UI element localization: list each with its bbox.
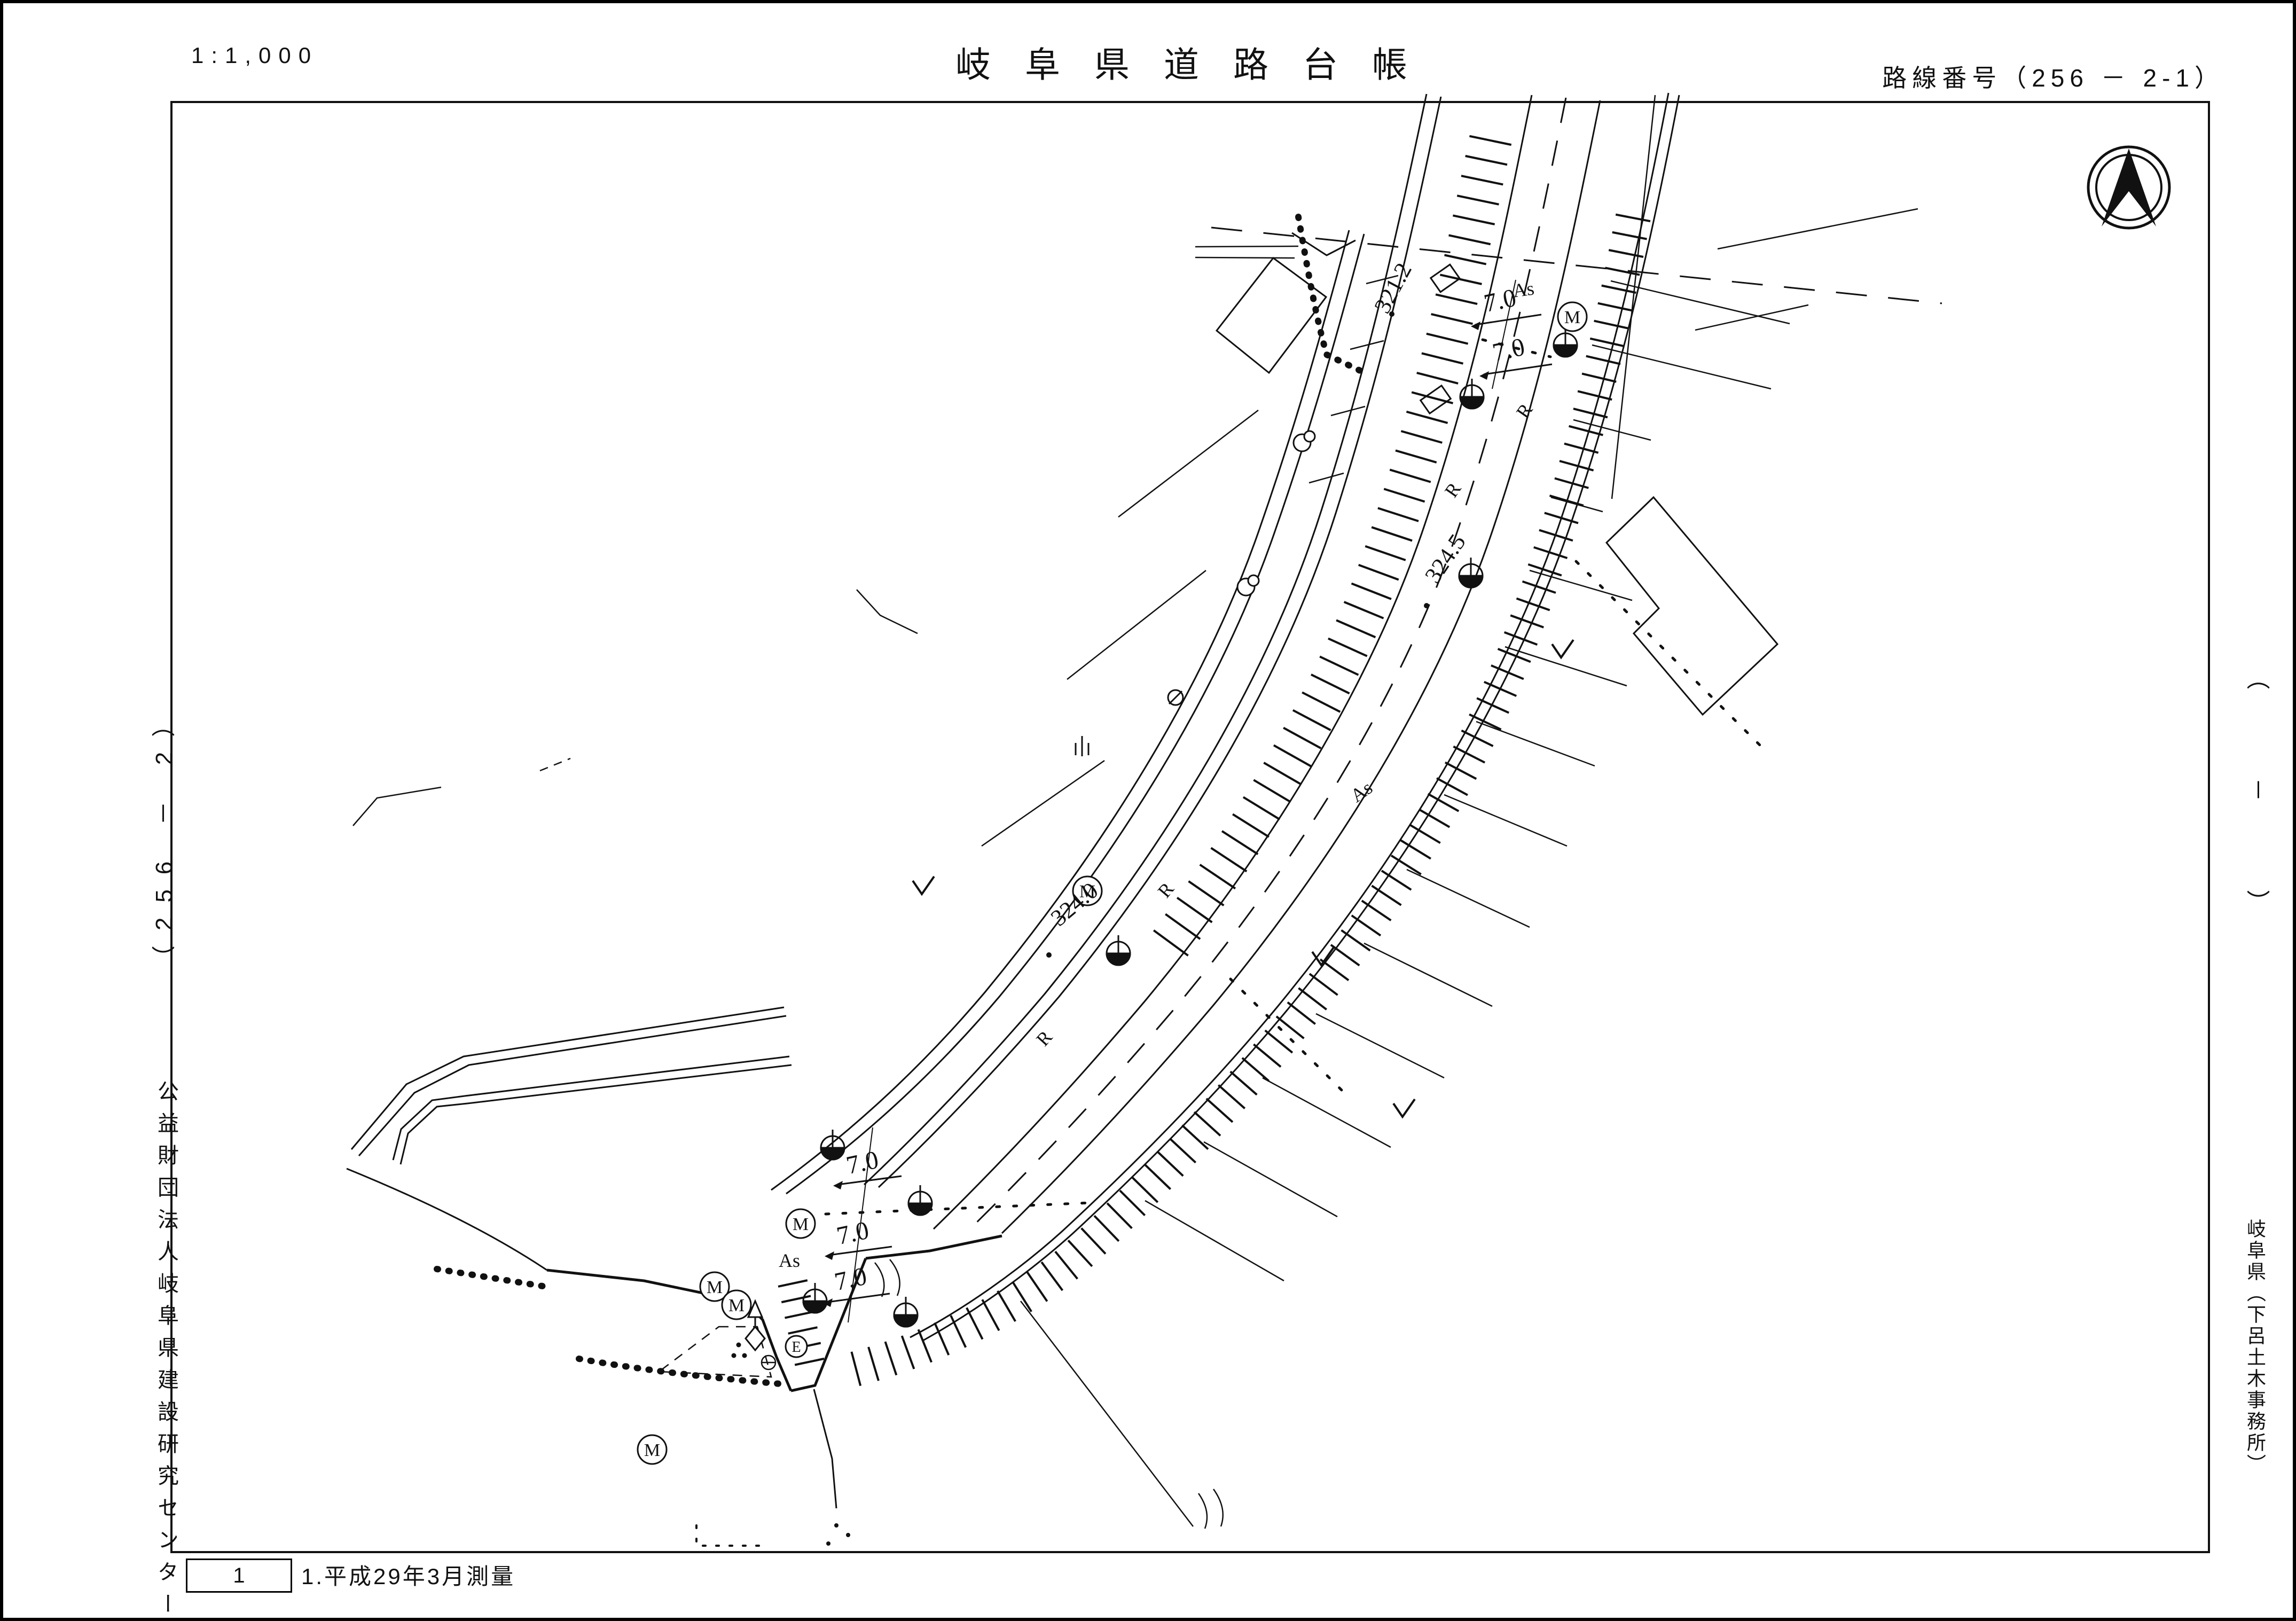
right-corridor-edge <box>910 93 1668 1337</box>
curve-label: R <box>1154 878 1178 902</box>
check-marks <box>913 640 1573 1117</box>
road-ledger-sheet: 1:1,000 岐阜県道路台帳 路線番号（256 － 2-1） （256 － 2… <box>0 0 2296 1621</box>
map-canvas: M M M M M M E <box>3 3 2296 1621</box>
curve-label: R <box>1032 1027 1056 1051</box>
spot-elevation-dot <box>1424 603 1429 608</box>
loop-road-edges <box>347 1007 792 1270</box>
surface-label: As <box>1511 278 1535 302</box>
utility-pole-symbol <box>1168 690 1183 705</box>
map-labels: 321.2 324.5 324.0 7.0 7.0 7.0 7.0 7.0 As… <box>779 259 1537 1296</box>
manhole-letter: M <box>1564 308 1580 327</box>
dimension-arrowheads <box>823 322 1489 1307</box>
manhole-letter: M <box>793 1215 809 1234</box>
slope-hatch-band <box>853 217 1633 1369</box>
surface-label: As <box>1346 777 1376 806</box>
dotted-corner <box>696 1525 762 1546</box>
north-arrow-icon <box>2088 147 2169 228</box>
manhole-letter: M <box>707 1278 723 1297</box>
channel-edge <box>771 230 1349 1190</box>
tree-symbols <box>1237 431 1315 596</box>
boundary-dashed-line <box>1211 228 1942 303</box>
manhole-letter: M <box>728 1296 745 1315</box>
spot-elevation-label: 321.2 <box>1369 259 1417 317</box>
circle-minus-symbol <box>762 1356 775 1369</box>
vegetation-lines <box>437 217 1362 1384</box>
manhole-symbols <box>638 302 1587 1464</box>
map-frame <box>171 102 2209 1552</box>
map-linework <box>347 93 1942 1546</box>
manhole-letter: M <box>644 1440 660 1460</box>
road-width-label: 7.0 <box>832 1262 869 1296</box>
surface-label: As <box>779 1250 800 1271</box>
road-width-label: 7.0 <box>1490 333 1527 367</box>
channel-edge <box>786 234 1364 1194</box>
benchmark-symbols <box>803 327 1577 1327</box>
utility-letter: E <box>792 1339 801 1356</box>
parcel-dots <box>732 1343 851 1546</box>
spot-elevation-dot <box>1046 952 1052 958</box>
curve-label: R <box>1440 479 1466 502</box>
manhole-letters: M M M M M M <box>644 308 1580 1460</box>
spring-symbol <box>1076 736 1088 756</box>
building-outline <box>1607 497 1777 715</box>
curve-label: R <box>1512 400 1537 422</box>
right-corridor-edge <box>923 95 1679 1341</box>
main-road-centerline <box>968 98 1566 1231</box>
road-width-label: 7.0 <box>834 1216 872 1250</box>
